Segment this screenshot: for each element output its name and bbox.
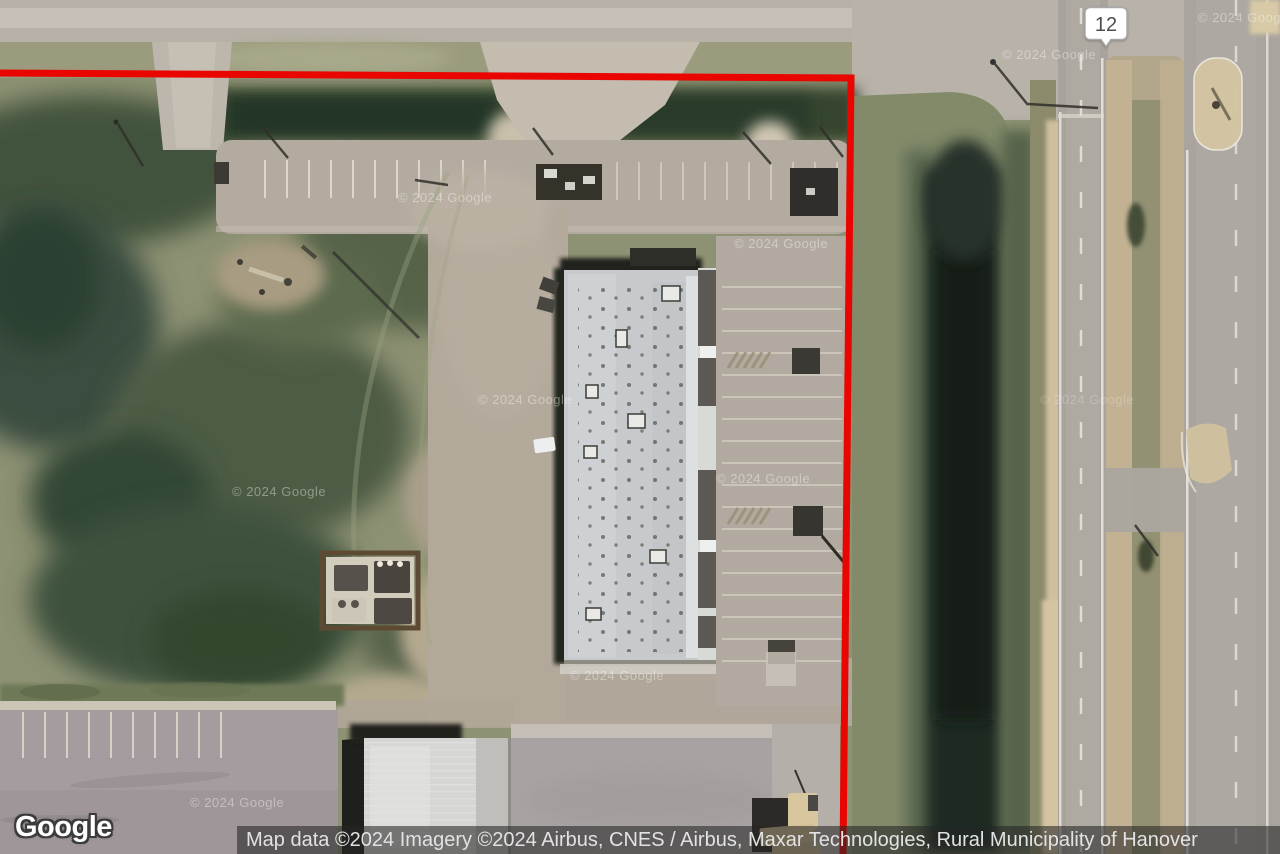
route-12-marker: 12 [1083, 6, 1129, 52]
satellite-imagery [0, 0, 1280, 854]
map-canvas[interactable]: © 2024 Google © 2024 Google © 2024 Googl… [0, 0, 1280, 854]
map-attribution-text: Map data ©2024 Imagery ©2024 Airbus, CNE… [237, 829, 1198, 852]
route-shield-label: 12 [1095, 14, 1117, 36]
attribution-bar: Map data ©2024 Imagery ©2024 Airbus, CNE… [237, 826, 1280, 854]
google-logo[interactable]: Google [15, 811, 112, 844]
